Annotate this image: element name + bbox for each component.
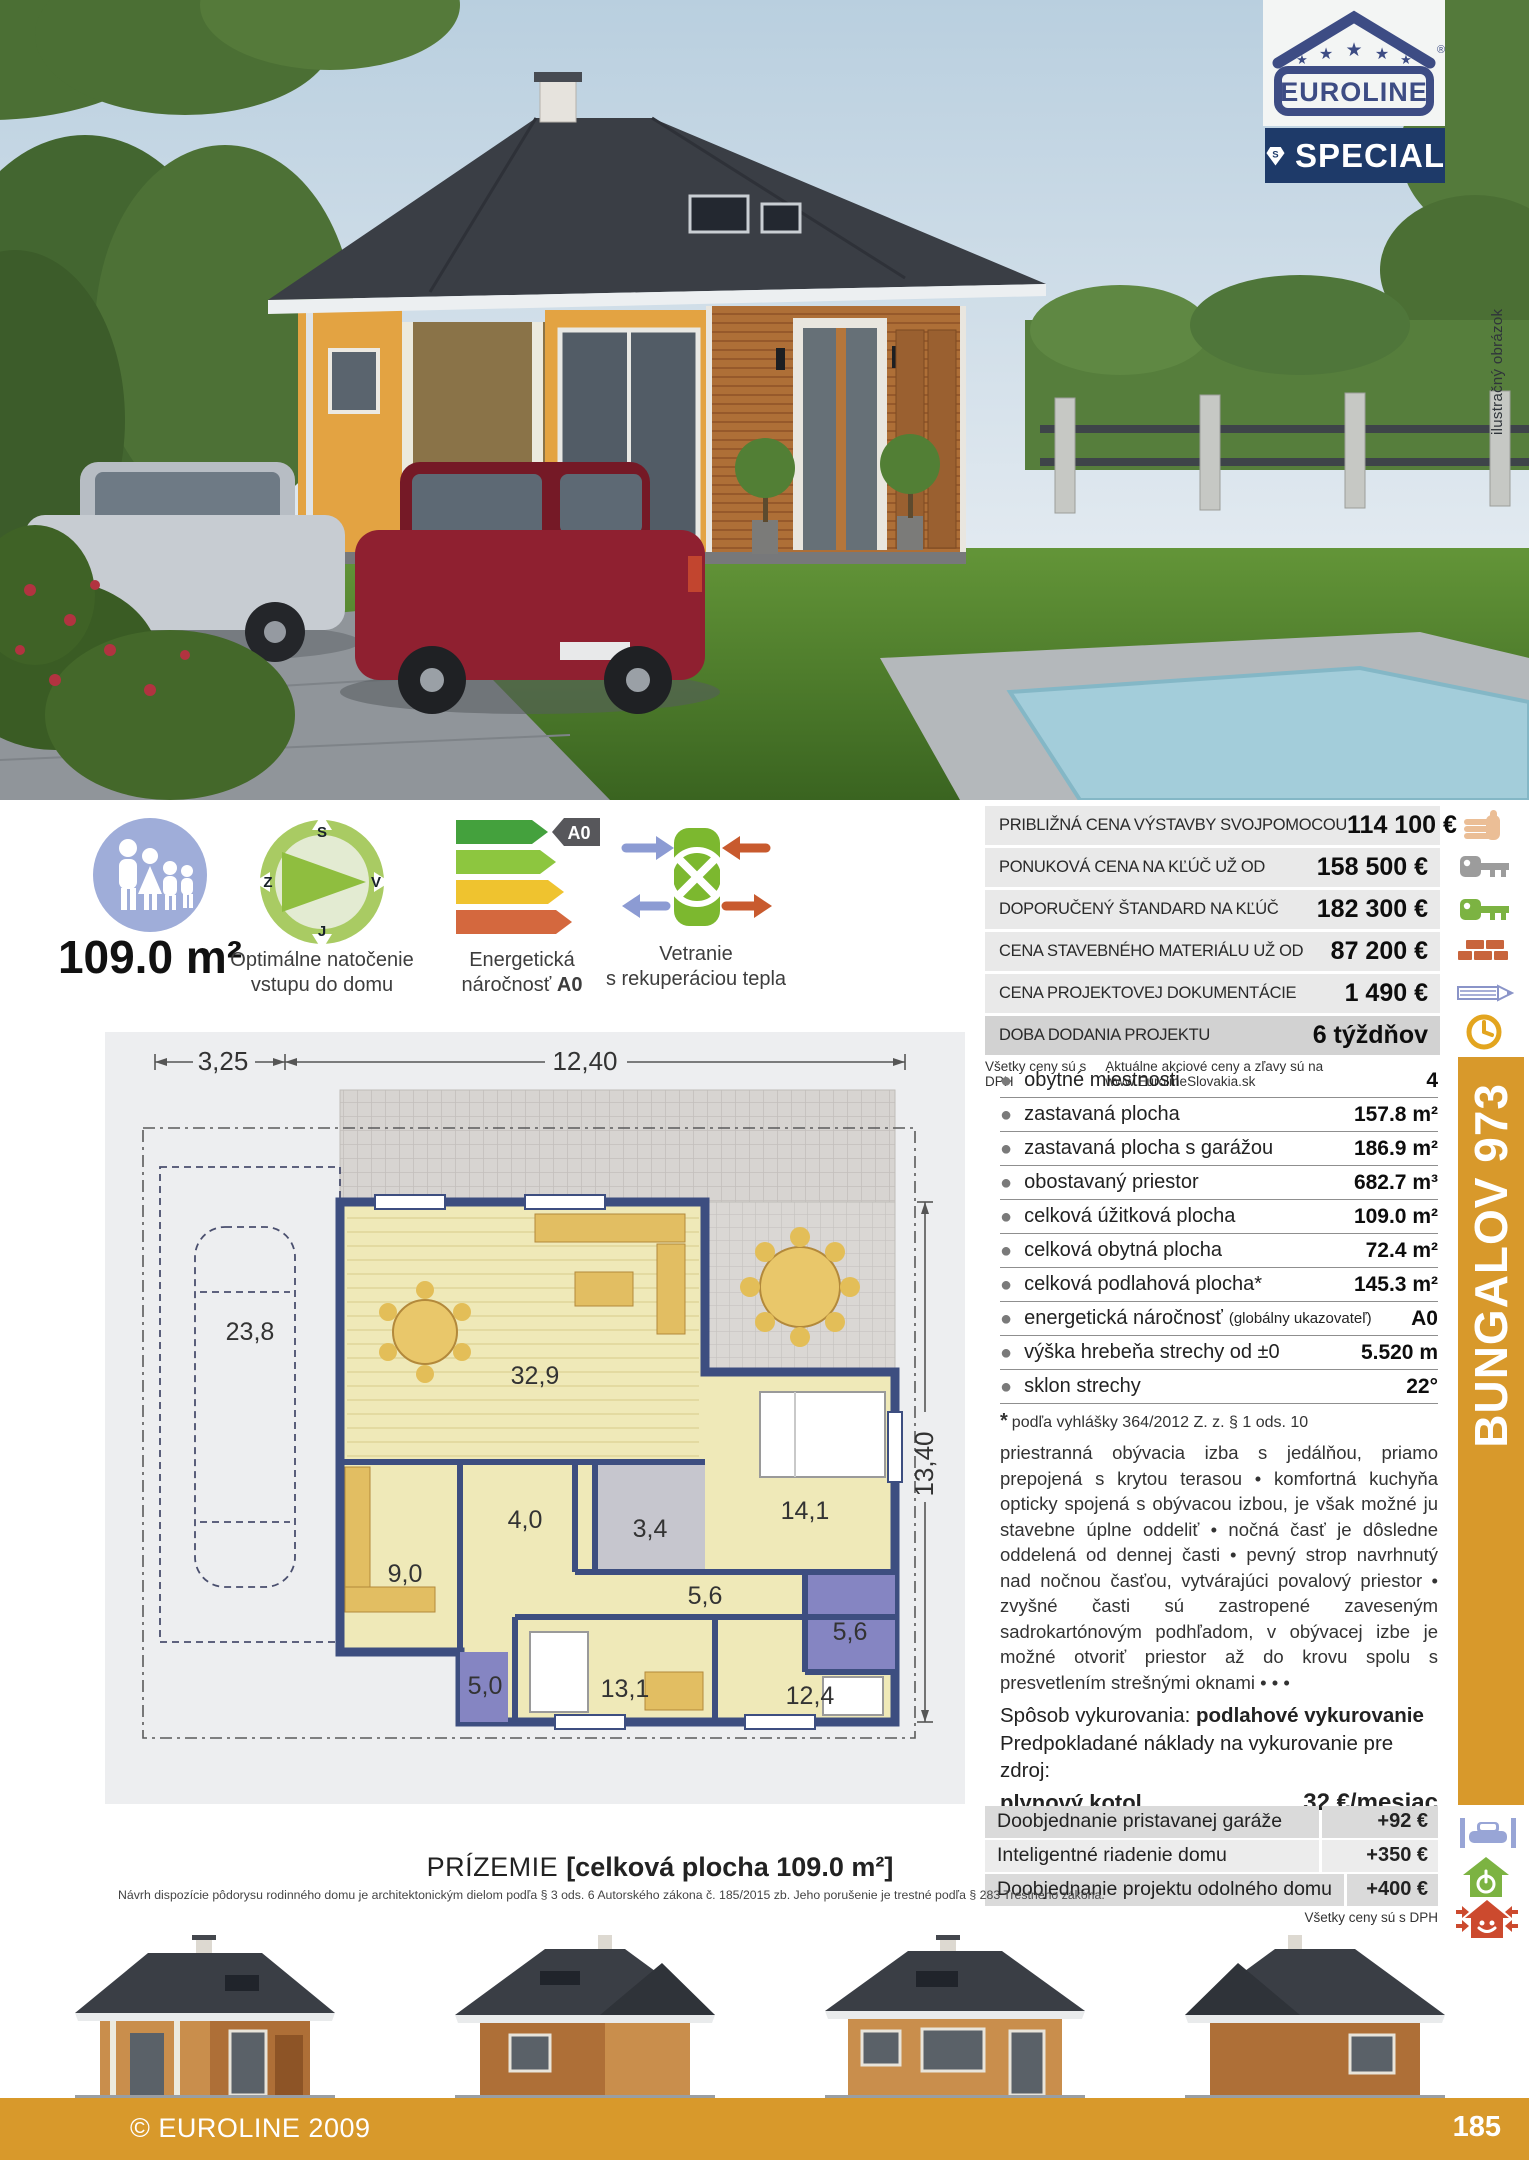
spec-row: ● obytné miestnosti4 xyxy=(1000,1064,1438,1098)
car-garage-icon xyxy=(1460,1814,1516,1850)
room-label: 4,0 xyxy=(508,1506,543,1534)
svg-text:V: V xyxy=(371,874,381,891)
room-label: 32,9 xyxy=(511,1362,560,1390)
page-number: 185 xyxy=(1453,2111,1501,2144)
option-row: Doobjednanie pristavanej garáže+92 € xyxy=(985,1806,1438,1838)
roof-overhang-hatch xyxy=(340,1090,895,1202)
spec-row: ● celková podlahová plocha*145.3 m² xyxy=(1000,1268,1438,1302)
elevation-rear xyxy=(820,1935,1090,2120)
svg-text:★: ★ xyxy=(1375,46,1389,63)
copyright-legal-note: Návrh dispozície pôdorysu rodinného domu… xyxy=(118,1888,978,1902)
floor-plan: 3,25 12,40 xyxy=(105,1032,965,1804)
room-label: 5,0 xyxy=(468,1672,503,1700)
model-sidebar: BUNGALOV 973 xyxy=(1458,1057,1524,1805)
pencil-icon xyxy=(1456,984,1514,1002)
clock-icon xyxy=(1464,1012,1504,1052)
room-label: 14,1 xyxy=(781,1497,830,1525)
elevation-front xyxy=(70,1935,340,2120)
chimney xyxy=(534,72,582,122)
options-table: Doobjednanie pristavanej garáže+92 € Int… xyxy=(985,1806,1438,1925)
ventilation-icon xyxy=(618,822,774,932)
special-s-icon: S xyxy=(1265,133,1286,179)
svg-text:★: ★ xyxy=(1319,46,1333,63)
elevation-side-right xyxy=(1180,1935,1450,2120)
spec-row: ● energetická náročnosť(globálny ukazova… xyxy=(1000,1302,1438,1336)
compass-caption: Optimálne natočenievstupu do domu xyxy=(222,948,422,998)
price-table: PRIBLIŽNÁ CENA VÝSTAVBY SVOJPOMOCOU114 1… xyxy=(985,806,1440,1089)
family-icon xyxy=(90,816,210,934)
room-label: 3,4 xyxy=(633,1515,668,1543)
spec-row: ● zastavaná plocha s garážou186.9 m² xyxy=(1000,1132,1438,1166)
green-key-icon xyxy=(1458,895,1512,925)
spec-row: ● celková úžitková plocha109.0 m² xyxy=(1000,1200,1438,1234)
heating-info: Spôsob vykurovania: podlahové vykurovani… xyxy=(1000,1702,1438,1819)
price-row: CENA PROJEKTOVEJ DOKUMENTÁCIE1 490 € xyxy=(985,974,1440,1013)
room-label: 5,6 xyxy=(833,1618,868,1646)
roof-window xyxy=(690,196,748,232)
svg-text:★: ★ xyxy=(1296,52,1308,67)
spec-row: ● výška hrebeňa strechy od ±05.520 m xyxy=(1000,1336,1438,1370)
svg-text:★: ★ xyxy=(1345,40,1362,61)
spec-footnote: *podľa vyhlášky 364/2012 Z. z. § 1 ods. … xyxy=(1000,1410,1438,1433)
svg-text:13,40: 13,40 xyxy=(909,1431,939,1496)
spec-row: ● obostavaný priestor682.7 m³ xyxy=(1000,1166,1438,1200)
small-window xyxy=(330,350,378,412)
registered-mark: ® xyxy=(1437,44,1445,56)
entrance-door xyxy=(793,318,887,550)
model-name: BUNGALOV 973 xyxy=(1458,1057,1524,1805)
room-label: 12,4 xyxy=(786,1682,835,1710)
special-label: SPECIAL xyxy=(1295,137,1445,175)
price-row: DOPORUČENÝ ŠTANDARD NA KĽÚČ182 300 € xyxy=(985,890,1440,929)
specs-table: ● obytné miestnosti4 ● zastavaná plocha1… xyxy=(1000,1064,1438,1433)
roof-window xyxy=(762,204,800,232)
room-label: 23,8 xyxy=(226,1318,275,1346)
price-row: PONUKOVÁ CENA NA KĽÚČ UŽ OD158 500 € xyxy=(985,848,1440,887)
svg-text:12,40: 12,40 xyxy=(552,1046,617,1076)
resilient-home-icon xyxy=(1456,1898,1518,1940)
spec-row: ● sklon strechy22° xyxy=(1000,1370,1438,1404)
special-badge: S SPECIAL xyxy=(1265,128,1445,183)
logo-wordmark: EUROLINE xyxy=(1280,77,1428,107)
gray-key-icon xyxy=(1458,852,1512,882)
page-footer: © EUROLINE 2009 185 xyxy=(0,2098,1529,2160)
energy-caption: Energetická náročnosť A0 xyxy=(432,948,612,998)
svg-text:Z: Z xyxy=(263,874,272,891)
energy-class-badge: A0 xyxy=(567,823,590,843)
catalog-page: ilustračný obrázok ★ ★ ★ ★ ★ ® EUROLINE … xyxy=(0,0,1529,2160)
photo-disclaimer: ilustračný obrázok xyxy=(1489,205,1506,435)
price-row-delivery: DOBA DODANIA PROJEKTU6 týždňov xyxy=(985,1016,1440,1055)
hand-icon xyxy=(1462,808,1506,842)
room-label: 5,6 xyxy=(688,1582,723,1610)
svg-text:3,25: 3,25 xyxy=(198,1046,249,1076)
wall-lamp xyxy=(776,348,785,370)
energy-label-icon: A0 xyxy=(452,818,602,940)
price-row: CENA STAVEBNÉHO MATERIÁLU UŽ OD87 200 € xyxy=(985,932,1440,971)
spec-row: ● zastavaná plocha157.8 m² xyxy=(1000,1098,1438,1132)
room-label: 9,0 xyxy=(388,1560,423,1588)
room-label: 13,1 xyxy=(601,1675,650,1703)
bricks-icon xyxy=(1458,938,1512,964)
svg-text:S: S xyxy=(317,824,327,841)
compass-icon: S V J Z xyxy=(252,812,392,952)
house-description: priestranná obývacia izba s jedálňou, pr… xyxy=(1000,1440,1438,1695)
price-row: PRIBLIŽNÁ CENA VÝSTAVBY SVOJPOMOCOU114 1… xyxy=(985,806,1440,845)
spec-row: ● celková obytná plocha72.4 m² xyxy=(1000,1234,1438,1268)
copyright: © EUROLINE 2009 xyxy=(130,2113,371,2144)
svg-text:S: S xyxy=(1272,149,1278,160)
elevation-side-left xyxy=(450,1935,720,2120)
options-fineprint: Všetky ceny sú s DPH xyxy=(985,1910,1438,1925)
wood-door xyxy=(928,330,956,548)
smart-home-icon xyxy=(1462,1856,1510,1898)
ventilation-caption: Vetranies rekuperáciou tepla xyxy=(596,942,796,992)
svg-text:★: ★ xyxy=(1400,52,1412,67)
plan-caption: PRÍZEMIE [celková plocha 109.0 m²] xyxy=(330,1852,990,1883)
svg-text:J: J xyxy=(318,923,326,940)
euroline-logo: ★ ★ ★ ★ ★ ® EUROLINE xyxy=(1263,0,1445,126)
pool xyxy=(880,632,1529,800)
option-row: Inteligentné riadenie domu+350 € xyxy=(985,1840,1438,1872)
